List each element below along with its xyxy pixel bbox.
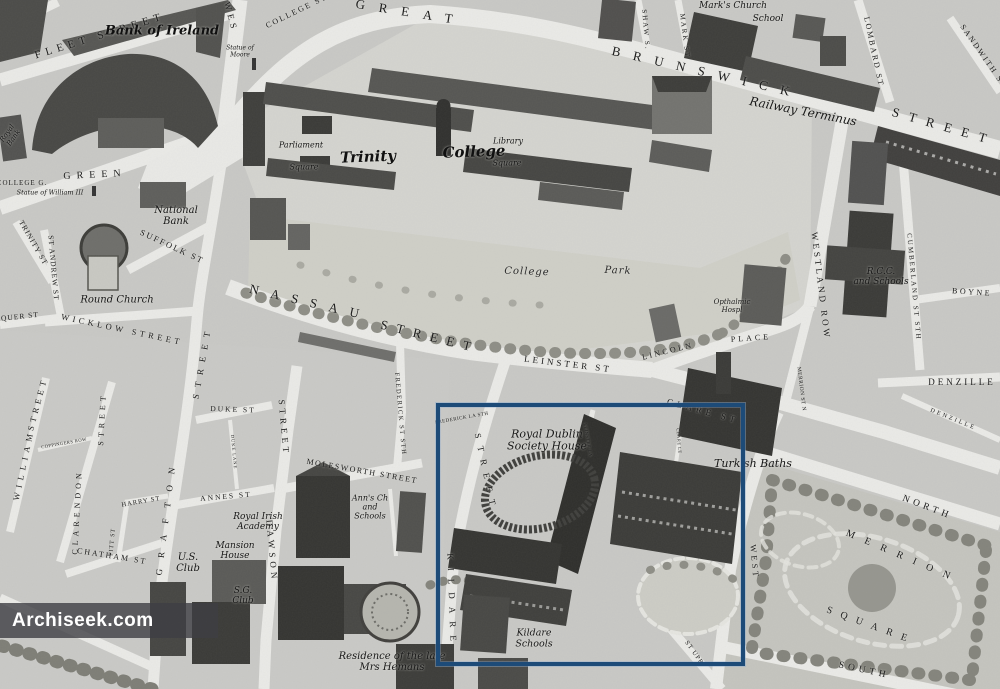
highlight-box (436, 403, 745, 666)
watermark-bar: Archiseek.com (0, 603, 218, 638)
dublin-engraved-map: FLEET STREETWESCOLLEGE STGREATBRUNSWICKS… (0, 0, 1000, 689)
watermark-text: Archiseek.com (0, 610, 154, 632)
